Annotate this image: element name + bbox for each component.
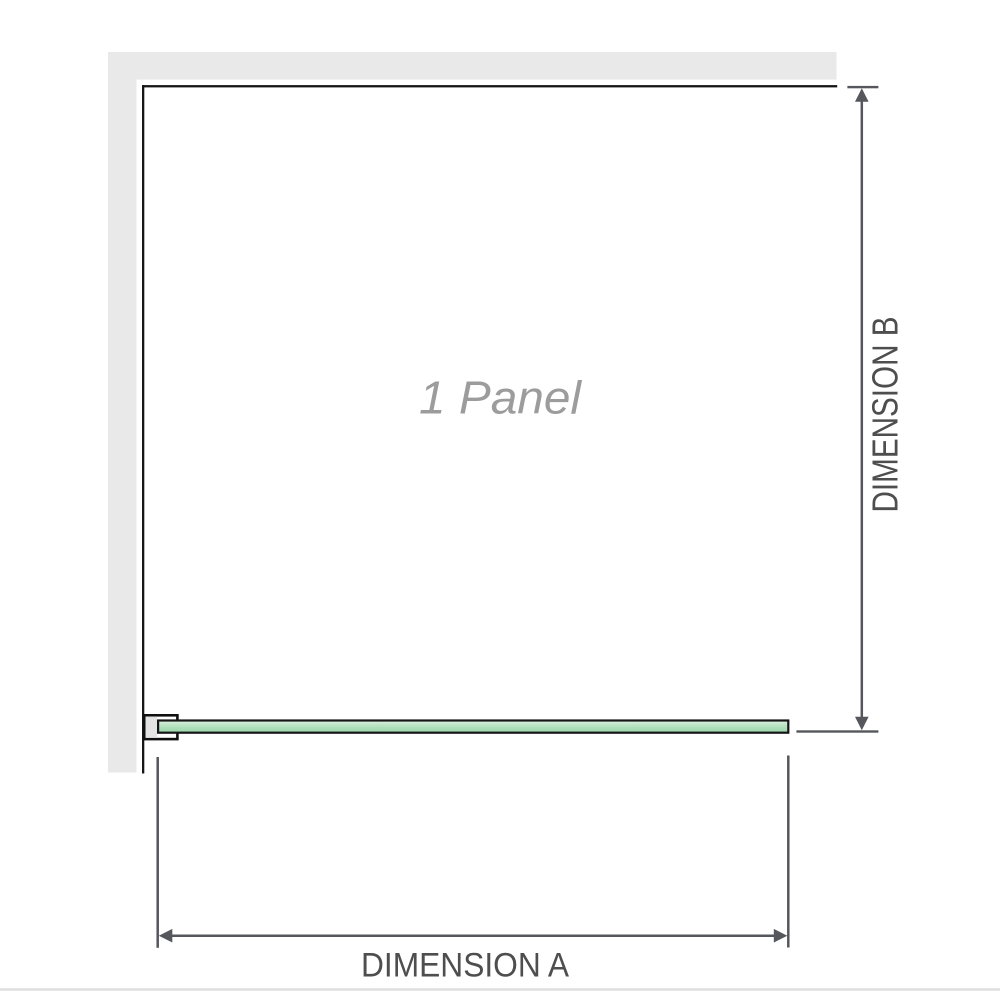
svg-text:1 Panel: 1 Panel <box>419 372 583 424</box>
svg-text:DIMENSION A: DIMENSION A <box>361 947 569 985</box>
svg-text:DIMENSION B: DIMENSION B <box>865 317 906 513</box>
